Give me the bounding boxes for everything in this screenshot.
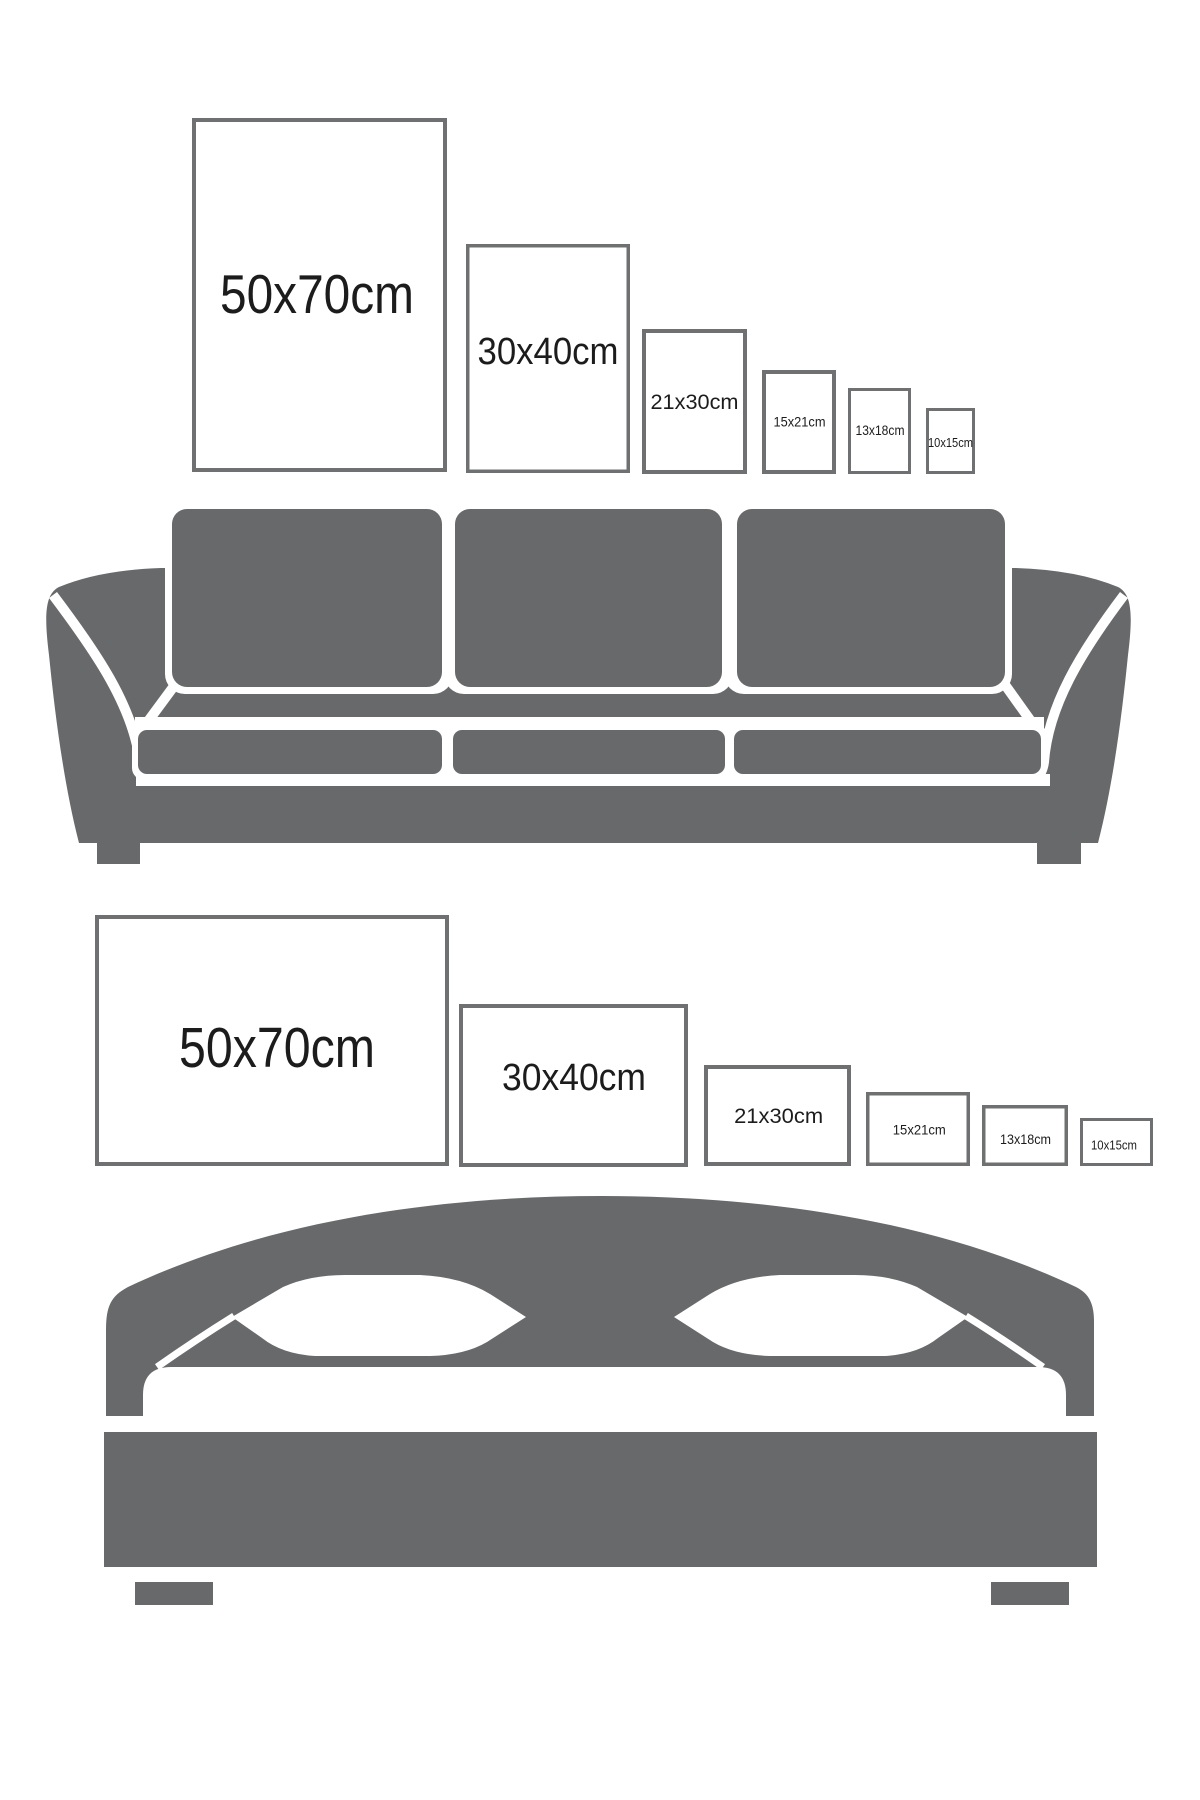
svg-text:10x15cm: 10x15cm: [1091, 1138, 1137, 1152]
svg-text:30x40cm: 30x40cm: [502, 1057, 646, 1099]
svg-text:21x30cm: 21x30cm: [651, 390, 739, 414]
svg-text:13x18cm: 13x18cm: [856, 423, 905, 438]
svg-text:10x15cm: 10x15cm: [928, 436, 973, 450]
svg-text:15x21cm: 15x21cm: [893, 1123, 946, 1138]
svg-text:50x70cm: 50x70cm: [179, 1016, 375, 1080]
svg-text:15x21cm: 15x21cm: [774, 414, 826, 429]
svg-text:30x40cm: 30x40cm: [478, 331, 619, 373]
svg-text:21x30cm: 21x30cm: [734, 1104, 823, 1128]
svg-text:50x70cm: 50x70cm: [220, 263, 414, 325]
svg-text:13x18cm: 13x18cm: [1000, 1132, 1051, 1147]
